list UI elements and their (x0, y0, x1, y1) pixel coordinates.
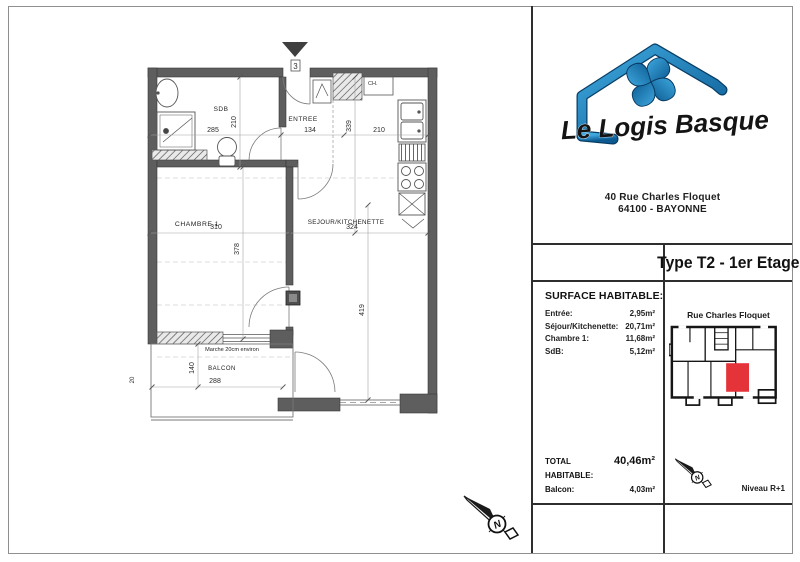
dim-balcon-depth: 140 (189, 362, 196, 374)
surface-label: SdB: (545, 346, 564, 359)
water-heater-label: CH. (368, 81, 378, 87)
surface-value: 11,68m² (626, 333, 655, 346)
toilet (218, 138, 237, 157)
surface-value: 5,12m² (630, 346, 655, 359)
windows (223, 335, 400, 406)
address-line-2: 64100 - BAYONNE (533, 204, 792, 216)
level-label: Niveau R+1 (742, 484, 785, 493)
keyplan-compass (675, 459, 711, 488)
room-label-sdb: SDB (214, 106, 229, 113)
surface-table: SURFACE HABITABLE: Entrée: 2,95m² Séjour… (533, 282, 663, 503)
surface-row-chambre: Chambre 1: 11,68m² (545, 333, 655, 346)
total-row: TOTAL HABITABLE: 40,46m² (545, 454, 655, 483)
company-logo: Le Logis Basque (547, 14, 777, 152)
type-row: Type T2 - 1er Etage (533, 243, 792, 282)
room-label-balcon: BALCON (208, 366, 236, 372)
surface-row-sdb: SdB: 5,12m² (545, 346, 655, 359)
dim-balcon-edge: 20 (130, 376, 136, 383)
appliance (399, 144, 425, 161)
dim-entree-width: 134 (304, 127, 316, 134)
balcony-value: 4,03m² (630, 483, 655, 497)
surface-row-sejour: Séjour/Kitchenette: 20,71m² (545, 321, 655, 334)
lauburu-icon (627, 58, 676, 107)
surface-label: Chambre 1: (545, 333, 589, 346)
keyplan-street-caption: Rue Charles Floquet (665, 310, 792, 320)
north-compass (464, 496, 518, 539)
room-label-entree: ENTREE (288, 116, 318, 123)
balcony-label: Balcon: (545, 483, 574, 497)
kitchen-fixtures (398, 100, 426, 228)
keyplan-compass-holder (669, 450, 715, 496)
total-label: TOTAL HABITABLE: (545, 455, 614, 483)
logo-wordmark: Le Logis Basque (560, 104, 769, 145)
title-block-panel: Le Logis Basque 40 Rue Charles Floquet 6… (531, 6, 792, 553)
dim-kitchen-depth: 339 (346, 120, 353, 132)
room-label-sejour: SEJOUR/KITCHENETTE (308, 219, 384, 226)
main-row: SURFACE HABITABLE: Entrée: 2,95m² Séjour… (533, 282, 792, 505)
address-line-1: 40 Rue Charles Floquet (533, 192, 792, 204)
project-address: 40 Rue Charles Floquet 64100 - BAYONNE (533, 192, 792, 216)
dim-balcon-width: 288 (209, 378, 221, 385)
bottom-row-divider (663, 505, 665, 553)
keyplan-cell: Rue Charles Floquet (663, 282, 792, 503)
surface-value: 2,95m² (630, 308, 655, 321)
dim-chambre-depth: 378 (234, 243, 241, 255)
logo-section: Le Logis Basque 40 Rue Charles Floquet 6… (533, 6, 792, 243)
dim-sejour-depth: 419 (359, 304, 366, 316)
dim-kitchen-width: 210 (373, 127, 385, 134)
surface-label: Entrée: (545, 308, 573, 321)
key-plan (669, 323, 789, 411)
apartment-type-title: Type T2 - 1er Etage (657, 253, 799, 273)
surface-row-entree: Entrée: 2,95m² (545, 308, 655, 321)
dim-sdb-width: 285 (207, 127, 219, 134)
entrance-marker: 3 (282, 42, 308, 71)
surface-value: 20,71m² (625, 321, 655, 334)
utility-box (286, 291, 300, 305)
total-value: 40,46m² (614, 454, 655, 468)
surface-label: Séjour/Kitchenette: (545, 321, 618, 334)
surface-heading: SURFACE HABITABLE: (545, 290, 663, 302)
balcony-outline (151, 344, 293, 420)
balcony-step-note: Marche 20cm environ (205, 347, 259, 353)
type-cell: Type T2 - 1er Etage (663, 245, 792, 280)
dim-sdb-depth: 210 (231, 116, 238, 128)
unit-number: 3 (293, 62, 298, 71)
balcony-row: Balcon: 4,03m² (545, 483, 655, 497)
room-label-chambre: CHAMBRE 1 (175, 221, 219, 228)
highlighted-unit (726, 363, 749, 392)
